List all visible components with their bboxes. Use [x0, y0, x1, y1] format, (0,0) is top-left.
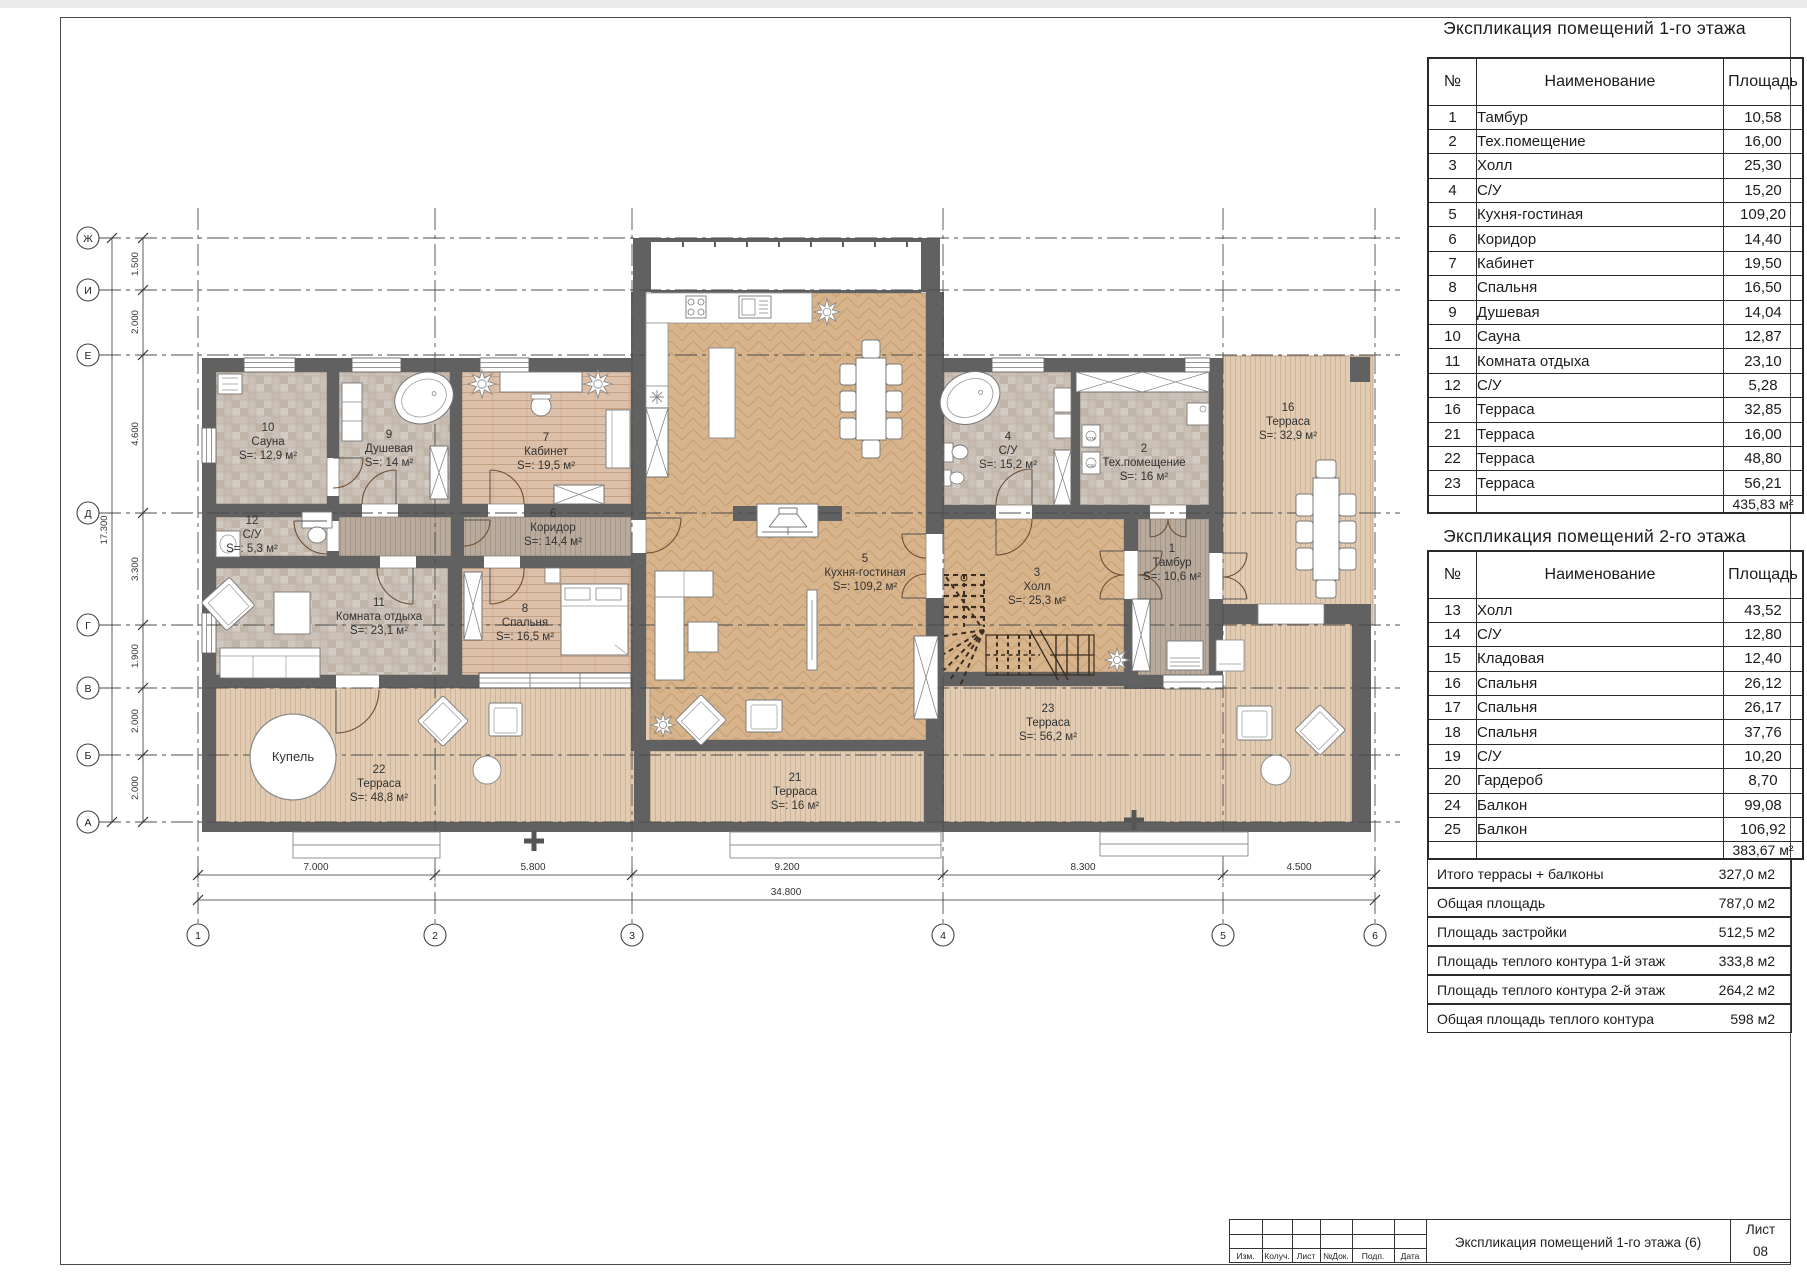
svg-text:С/У: С/У: [243, 529, 263, 541]
svg-text:S=: 16 м²: S=: 16 м²: [1120, 471, 1169, 483]
svg-text:2.000: 2.000: [130, 709, 141, 733]
svg-text:21: 21: [789, 772, 802, 784]
svg-text:Терраса: Терраса: [357, 778, 402, 790]
svg-text:СтМ: СтМ: [1086, 436, 1095, 441]
svg-text:S=: 15,2 м²: S=: 15,2 м²: [979, 459, 1037, 471]
svg-text:S=: 14,4 м²: S=: 14,4 м²: [524, 536, 582, 548]
svg-text:Холл: Холл: [1023, 581, 1050, 593]
svg-text:6: 6: [550, 508, 556, 520]
svg-text:17.300: 17.300: [99, 515, 110, 544]
svg-text:Душевая: Душевая: [365, 443, 413, 455]
svg-text:С/У: С/У: [999, 445, 1019, 457]
svg-text:6: 6: [1372, 930, 1378, 942]
svg-text:S=: 14 м²: S=: 14 м²: [365, 457, 414, 469]
svg-text:2: 2: [432, 930, 438, 942]
svg-text:2: 2: [1141, 443, 1147, 455]
svg-text:10: 10: [262, 422, 275, 434]
svg-text:В: В: [84, 683, 91, 695]
svg-text:S=: 109,2 м²: S=: 109,2 м²: [833, 581, 898, 593]
svg-text:S=: 5,3 м²: S=: 5,3 м²: [226, 543, 278, 555]
svg-text:3: 3: [1034, 567, 1040, 579]
svg-text:S=: 25,3 м²: S=: 25,3 м²: [1008, 595, 1066, 607]
svg-text:3.300: 3.300: [130, 557, 141, 581]
svg-text:Коридор: Коридор: [530, 522, 575, 534]
svg-text:5.800: 5.800: [520, 862, 545, 873]
svg-text:16: 16: [1282, 402, 1295, 414]
svg-text:3: 3: [629, 930, 635, 942]
svg-text:Терраса: Терраса: [1026, 717, 1071, 729]
svg-text:И: И: [84, 285, 92, 297]
svg-text:S=: 10,6 м²: S=: 10,6 м²: [1143, 571, 1201, 583]
svg-text:8: 8: [522, 603, 528, 615]
svg-text:S=: 23,1 м²: S=: 23,1 м²: [350, 625, 408, 637]
svg-text:Терраса: Терраса: [773, 786, 818, 798]
svg-text:4.600: 4.600: [130, 422, 141, 446]
svg-text:23: 23: [1042, 703, 1055, 715]
svg-text:4.500: 4.500: [1286, 862, 1311, 873]
svg-text:1: 1: [195, 930, 201, 942]
svg-text:Б: Б: [85, 750, 92, 762]
svg-text:Д: Д: [84, 508, 91, 520]
svg-text:Терраса: Терраса: [1266, 416, 1311, 428]
svg-text:5: 5: [1220, 930, 1226, 942]
svg-text:S=: 32,9 м²: S=: 32,9 м²: [1259, 430, 1317, 442]
svg-text:S=: 12,9 м²: S=: 12,9 м²: [239, 450, 297, 462]
svg-text:22: 22: [373, 764, 386, 776]
svg-text:Тех.помещение: Тех.помещение: [1102, 457, 1185, 469]
svg-text:S=: 19,5 м²: S=: 19,5 м²: [517, 460, 575, 472]
svg-text:Ж: Ж: [83, 233, 93, 245]
svg-text:Е: Е: [84, 350, 91, 362]
svg-text:12: 12: [246, 515, 259, 527]
svg-text:2.000: 2.000: [130, 776, 141, 800]
svg-text:Спальня: Спальня: [502, 617, 548, 629]
svg-text:Г: Г: [85, 620, 91, 632]
svg-text:9.200: 9.200: [774, 862, 799, 873]
svg-text:Кухня-гостиная: Кухня-гостиная: [824, 567, 905, 579]
svg-text:5: 5: [862, 553, 868, 565]
svg-text:Сауна: Сауна: [251, 436, 285, 448]
svg-text:34.800: 34.800: [771, 887, 802, 898]
svg-text:1.500: 1.500: [130, 252, 141, 276]
svg-text:S=: 16 м²: S=: 16 м²: [771, 800, 820, 812]
svg-text:Кабинет: Кабинет: [524, 446, 568, 458]
svg-text:4: 4: [940, 930, 946, 942]
svg-text:9: 9: [386, 429, 392, 441]
svg-text:8.300: 8.300: [1070, 862, 1095, 873]
svg-text:СШ: СШ: [1087, 463, 1094, 468]
svg-text:4: 4: [1005, 431, 1012, 443]
svg-text:Комната отдыха: Комната отдыха: [336, 611, 423, 623]
svg-text:Купель: Купель: [272, 749, 314, 764]
svg-text:7: 7: [543, 432, 549, 444]
svg-text:1: 1: [1169, 543, 1175, 555]
svg-text:1.900: 1.900: [130, 644, 141, 668]
svg-text:Тамбур: Тамбур: [1152, 557, 1191, 569]
svg-text:S=: 48,8 м²: S=: 48,8 м²: [350, 792, 408, 804]
svg-text:S=: 56,2 м²: S=: 56,2 м²: [1019, 731, 1077, 743]
svg-text:7.000: 7.000: [303, 862, 328, 873]
svg-text:S=: 16,5 м²: S=: 16,5 м²: [496, 631, 554, 643]
svg-text:2.000: 2.000: [130, 310, 141, 334]
svg-text:11: 11: [373, 597, 385, 609]
svg-text:А: А: [84, 817, 91, 829]
